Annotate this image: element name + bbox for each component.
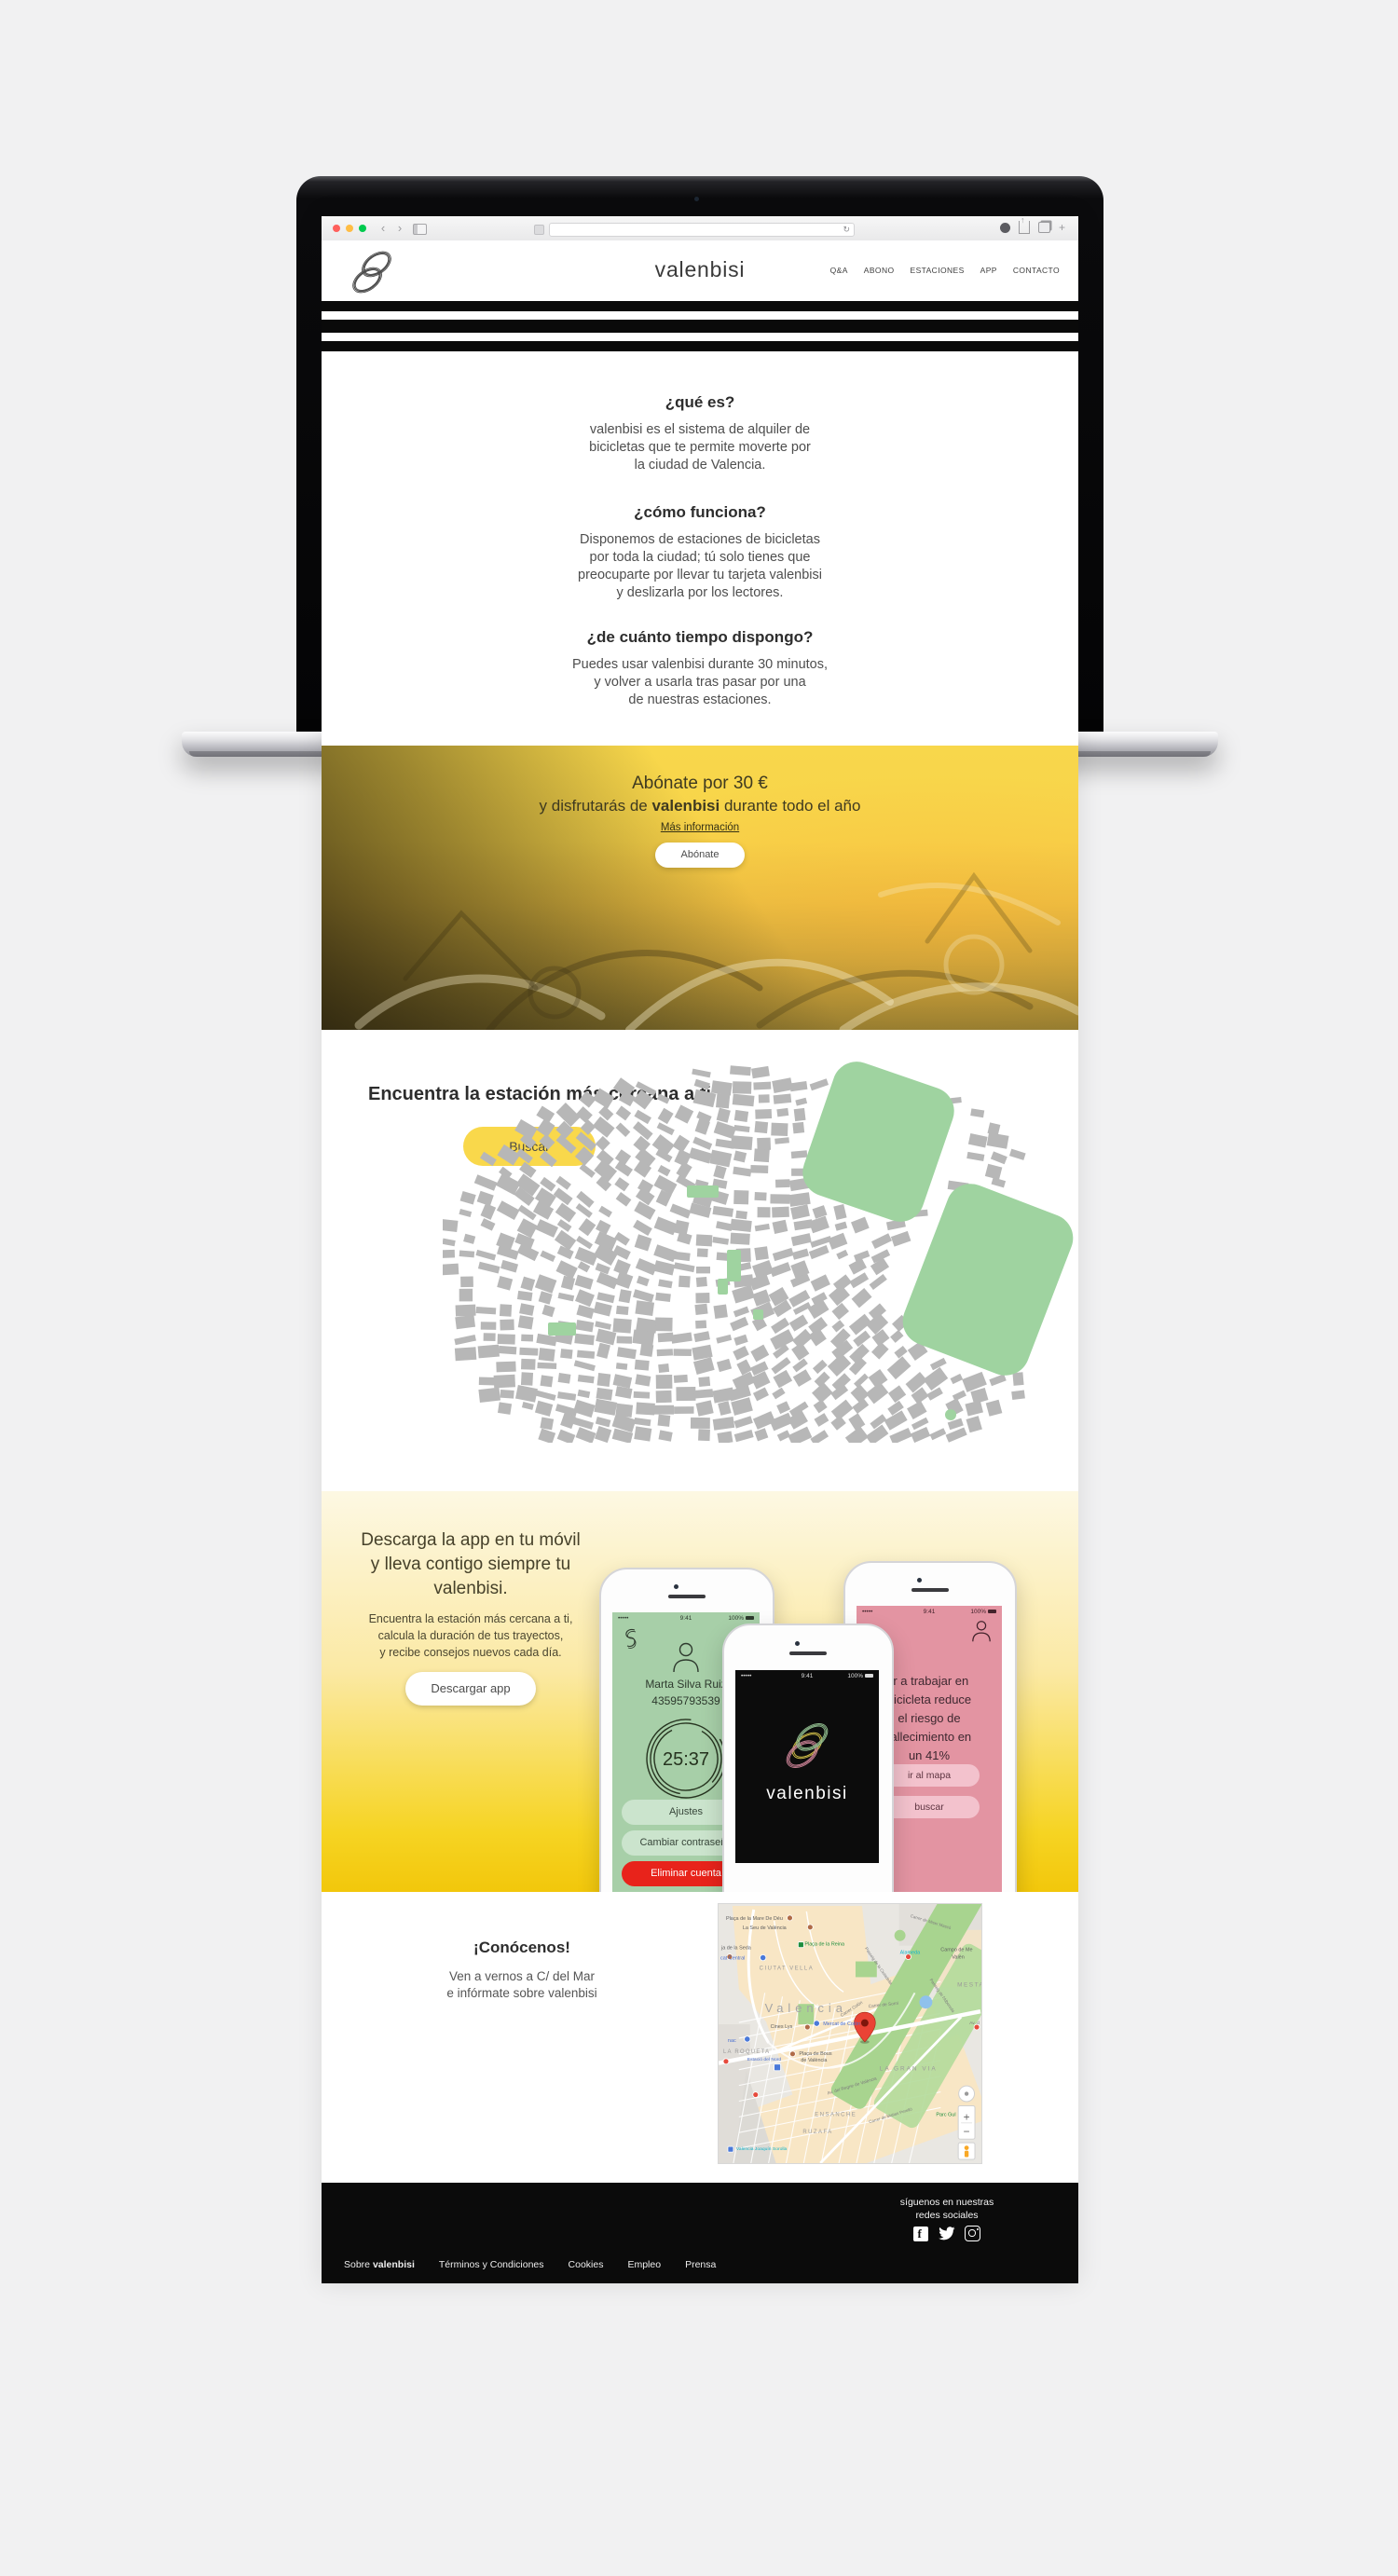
map-zoom-in-button[interactable]: + bbox=[964, 2110, 970, 2123]
visit-section: ¡Conócenos! Ven a vernos a C/ del Mar e … bbox=[322, 1892, 1078, 2183]
map-label: MESTA bbox=[957, 1981, 982, 1988]
banner-subheading: y disfrutarás de valenbisi durante todo … bbox=[322, 797, 1078, 815]
visit-heading: ¡Conócenos! bbox=[410, 1939, 634, 1957]
subscription-banner: Abónate por 30 € y disfrutarás de valenb… bbox=[322, 746, 1078, 1030]
minimize-window-button[interactable] bbox=[346, 225, 353, 232]
social-heading: síguenos en nuestras redes sociales bbox=[854, 2196, 1040, 2222]
map-label: Av. d bbox=[969, 2021, 980, 2026]
stations-section: Encuentra la estación más cercana a ti B… bbox=[322, 1030, 1078, 1491]
app-body: Encuentra la estación más cercana a ti, … bbox=[349, 1610, 592, 1661]
map-label: Alameda bbox=[900, 1951, 921, 1956]
search-button: buscar bbox=[879, 1796, 980, 1818]
nav-item-app[interactable]: APP bbox=[980, 266, 997, 275]
map-label: ENSANCHE bbox=[815, 2112, 857, 2117]
footer-link[interactable]: Cookies bbox=[569, 2259, 604, 2270]
map-label: LA GRAN VIA bbox=[880, 2066, 938, 2073]
map-label: CIUTAT VELLA bbox=[760, 1966, 814, 1971]
main-nav: Q&AABONOESTACIONESAPPCONTACTO bbox=[830, 266, 1060, 275]
app-section: Descarga la app en tu móvil y lleva cont… bbox=[322, 1491, 1078, 1892]
park-area bbox=[753, 1309, 763, 1320]
webcam-dot bbox=[694, 197, 699, 201]
map-label: Plaça de la Reina bbox=[804, 1942, 845, 1948]
map-label: Valèn bbox=[952, 1955, 965, 1961]
profile-icon bbox=[970, 1619, 993, 1643]
park-area bbox=[687, 1185, 719, 1198]
pegman-icon[interactable] bbox=[965, 2145, 969, 2157]
park-area bbox=[727, 1250, 741, 1281]
map-label: Valencia Joaquín Sorolla bbox=[736, 2146, 788, 2152]
faq-answer: Puedes usar valenbisi durante 30 minutos… bbox=[504, 656, 896, 709]
more-info-link-text[interactable]: Más información bbox=[661, 822, 739, 833]
forward-icon[interactable]: › bbox=[392, 221, 407, 236]
address-bar[interactable]: ↻ bbox=[549, 223, 855, 237]
map-controls: + − bbox=[958, 2086, 975, 2159]
map-label: Plaça de la Mare De Déu bbox=[726, 1916, 783, 1922]
tabs-overview-icon[interactable] bbox=[1038, 222, 1050, 233]
map-label: La Seu de València bbox=[743, 1925, 788, 1931]
decorative-stripes bbox=[322, 301, 1078, 351]
phone-camera-icon bbox=[795, 1641, 800, 1646]
social-icons: f bbox=[854, 2226, 1040, 2241]
map-label: Cines Lys bbox=[771, 2024, 793, 2030]
footer-link[interactable]: Prensa bbox=[685, 2259, 716, 2270]
facebook-icon[interactable]: f bbox=[913, 2227, 928, 2241]
phone-speaker bbox=[789, 1651, 827, 1655]
map-label: RUZAFA bbox=[802, 2130, 832, 2135]
phone-camera-icon bbox=[917, 1578, 922, 1583]
faq-question: ¿qué es? bbox=[504, 393, 896, 412]
desktop-background: { "browser": { "back_icon": "‹", "forwar… bbox=[0, 0, 1398, 2576]
app-logo-squiggle-icon bbox=[620, 1625, 644, 1659]
map-label: de València bbox=[801, 2058, 828, 2063]
app-heading: Descarga la app en tu móvil y lleva cont… bbox=[349, 1528, 592, 1601]
visit-body: Ven a vernos a C/ del Mar e infórmate so… bbox=[410, 1968, 634, 2002]
google-map[interactable]: Plaça de la Mare De DéuLa Seu de Valènci… bbox=[718, 1903, 982, 2164]
nav-item-abono[interactable]: ABONO bbox=[864, 266, 895, 275]
map-label: Valencia bbox=[765, 2001, 847, 2015]
city-blocks-map bbox=[443, 1051, 1076, 1443]
map-label: Parc Gul bbox=[936, 2112, 955, 2117]
park-area bbox=[548, 1322, 576, 1336]
faq-item: ¿de cuánto tiempo dispongo?Puedes usar v… bbox=[504, 628, 896, 709]
phone-speaker bbox=[911, 1588, 949, 1592]
favicon-placeholder bbox=[534, 225, 544, 235]
download-app-button[interactable]: Descargar app bbox=[405, 1672, 536, 1706]
phone-mockup-black: ••••• 9:41 100% valenbisi bbox=[722, 1624, 894, 1892]
map-label: LA ROQUETA bbox=[723, 2049, 770, 2055]
footer-link[interactable]: Términos y Condiciones bbox=[439, 2259, 544, 2270]
instagram-icon[interactable] bbox=[965, 2226, 980, 2241]
new-tab-icon[interactable]: + bbox=[1059, 221, 1065, 234]
phone-camera-icon bbox=[674, 1584, 678, 1589]
nav-item-qa[interactable]: Q&A bbox=[830, 266, 848, 275]
map-label: ja de la Seda bbox=[720, 1946, 752, 1952]
valenbisi-color-logo-icon bbox=[771, 1719, 843, 1773]
downloads-icon[interactable] bbox=[1000, 223, 1010, 233]
footer-links: Sobre valenbisiTérminos y CondicionesCoo… bbox=[344, 2259, 716, 2270]
footer-link[interactable]: Empleo bbox=[627, 2259, 661, 2270]
banner-heading: Abónate por 30 € bbox=[322, 774, 1078, 794]
map-label: nac bbox=[728, 2038, 736, 2044]
profile-icon bbox=[670, 1640, 702, 1674]
more-info-link: Más información bbox=[322, 822, 1078, 833]
faq-answer: valenbisi es el sistema de alquiler de b… bbox=[504, 421, 896, 474]
go-to-map-button: ir al mapa bbox=[879, 1764, 980, 1787]
back-icon[interactable]: ‹ bbox=[376, 221, 391, 236]
map-label: Mercat de Colón bbox=[823, 2021, 860, 2027]
nav-item-contacto[interactable]: CONTACTO bbox=[1013, 266, 1060, 275]
subscribe-button[interactable]: Abónate bbox=[655, 843, 745, 868]
sidebar-icon[interactable] bbox=[413, 224, 427, 235]
share-icon[interactable] bbox=[1019, 221, 1030, 234]
browser-toolbar: ‹ › ↻ + bbox=[322, 216, 1078, 241]
park-area bbox=[718, 1279, 728, 1295]
site-header: valenbisi Q&AABONOESTACIONESAPPCONTACTO bbox=[322, 240, 1078, 301]
map-label: cat Central bbox=[720, 1956, 745, 1962]
refresh-icon[interactable]: ↻ bbox=[843, 224, 850, 236]
site-footer: síguenos en nuestras redes sociales f So… bbox=[322, 2183, 1078, 2283]
faq-question: ¿cómo funciona? bbox=[504, 503, 896, 522]
faq-question: ¿de cuánto tiempo dispongo? bbox=[504, 628, 896, 647]
faq-answer: Disponemos de estaciones de bicicletas p… bbox=[504, 531, 896, 602]
map-label: Plaça de Bous bbox=[799, 2051, 831, 2057]
map-label: Estació del Nord bbox=[747, 2057, 782, 2062]
footer-link[interactable]: Sobre valenbisi bbox=[344, 2259, 415, 2270]
twitter-icon[interactable] bbox=[938, 2227, 955, 2241]
phone-speaker bbox=[668, 1595, 706, 1598]
map-label: Campo de Me bbox=[940, 1948, 972, 1953]
fullscreen-window-button[interactable] bbox=[359, 225, 366, 232]
faq-item: ¿cómo funciona?Disponemos de estaciones … bbox=[504, 503, 896, 602]
close-window-button[interactable] bbox=[333, 225, 340, 232]
map-zoom-out-button[interactable]: − bbox=[964, 2125, 970, 2138]
splash-logo-text: valenbisi bbox=[735, 1784, 879, 1804]
nav-item-estaciones[interactable]: ESTACIONES bbox=[911, 266, 965, 275]
browser-window: ‹ › ↻ + valenbisi Q&AABONOESTACIONESAPPC… bbox=[322, 216, 1078, 2283]
faq-item: ¿qué es?valenbisi es el sistema de alqui… bbox=[504, 393, 896, 474]
faq-section: ¿qué es?valenbisi es el sistema de alqui… bbox=[322, 351, 1078, 746]
